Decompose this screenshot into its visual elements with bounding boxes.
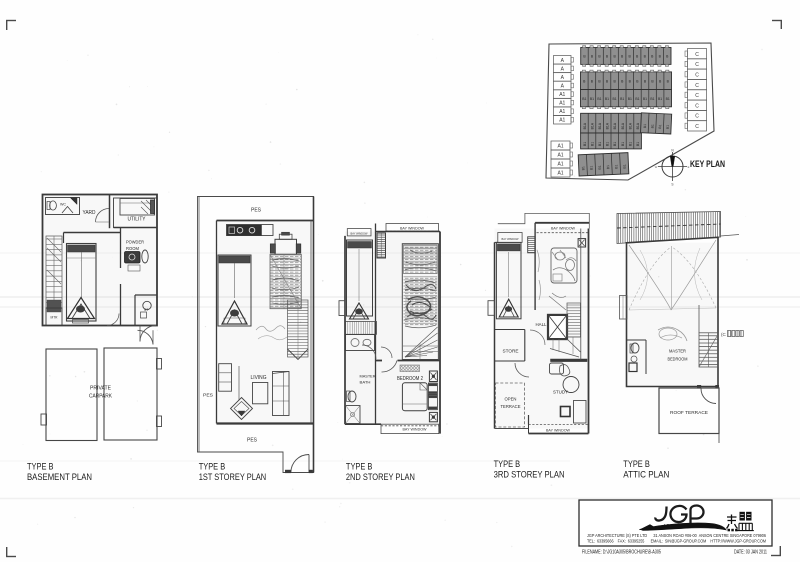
- svg-text:B1: B1: [643, 124, 647, 128]
- svg-text:TYPE B: TYPE B: [623, 459, 650, 469]
- svg-text:C: C: [695, 62, 699, 68]
- svg-text:B1: B1: [606, 165, 610, 169]
- svg-text:WC: WC: [60, 203, 66, 207]
- svg-text:ROOF TERRACE: ROOF TERRACE: [670, 410, 708, 415]
- svg-text:TYPE B: TYPE B: [346, 461, 373, 471]
- svg-text:CARPARK: CARPARK: [89, 394, 112, 400]
- svg-text:A1: A1: [557, 171, 563, 177]
- svg-text:B1: B1: [590, 142, 594, 146]
- svg-text:C: C: [695, 52, 699, 58]
- svg-text:ST: ST: [144, 308, 148, 312]
- svg-text:B1: B1: [666, 125, 670, 129]
- svg-text:A1: A1: [559, 109, 565, 115]
- svg-text:B1: B1: [589, 166, 593, 170]
- svg-text:DATE: 03 JAN 2011: DATE: 03 JAN 2011: [734, 549, 767, 555]
- svg-text:B1: B1: [658, 124, 662, 128]
- svg-text:KEY PLAN: KEY PLAN: [690, 159, 725, 170]
- svg-text:B1: B1: [614, 164, 618, 168]
- svg-text:PES: PES: [203, 393, 213, 398]
- svg-text:B1: B1: [613, 97, 617, 101]
- svg-text:B1: B1: [635, 97, 639, 101]
- svg-text:TYPE B: TYPE B: [199, 461, 226, 471]
- svg-text:PRIVATE: PRIVATE: [90, 386, 111, 392]
- svg-text:BAY WINDOW: BAY WINDOW: [351, 231, 369, 235]
- svg-text:LIVING: LIVING: [251, 375, 267, 381]
- svg-text:UTILITY: UTILITY: [128, 217, 147, 223]
- svg-text:POWDER: POWDER: [126, 240, 145, 245]
- svg-text:BEDROOM 2: BEDROOM 2: [397, 376, 423, 382]
- svg-text:FILENAME: D:\JG10A305\BROCHURE: FILENAME: D:\JG10A305\BROCHURE\B-A305: [582, 549, 661, 555]
- svg-text:B1: B1: [583, 142, 587, 146]
- svg-text:JGP ARCHITECTURE (S) PTE LTD: JGP ARCHITECTURE (S) PTE LTD 31 ANSON RO…: [587, 533, 767, 538]
- svg-text:TYPE B: TYPE B: [494, 459, 520, 469]
- svg-text:A1: A1: [559, 101, 565, 107]
- svg-text:ROOM: ROOM: [126, 246, 139, 251]
- svg-text:3RD STOREY PLAN: 3RD STOREY PLAN: [494, 470, 565, 480]
- svg-text:B1: B1: [651, 124, 655, 128]
- svg-text:TERRACE: TERRACE: [501, 404, 521, 409]
- svg-text:C: C: [695, 103, 699, 109]
- svg-text:TEL: 63395666 FAX: 633952: TEL: 63395666 FAX: 63395255 EMAIL: SIN@J…: [587, 538, 766, 543]
- svg-text:B1A: B1A: [621, 122, 625, 129]
- svg-text:B1: B1: [598, 142, 602, 146]
- svg-text:BATH: BATH: [360, 380, 371, 385]
- svg-text:B1A: B1A: [636, 122, 640, 129]
- svg-text:HALL: HALL: [536, 322, 548, 327]
- svg-text:A1: A1: [557, 153, 563, 159]
- svg-text:BAY WINDOW: BAY WINDOW: [502, 237, 520, 241]
- svg-text:B1A: B1A: [590, 122, 594, 129]
- svg-text:YARD: YARD: [83, 210, 96, 216]
- svg-text:OPEN: OPEN: [505, 397, 517, 402]
- svg-text:B1: B1: [666, 97, 670, 101]
- svg-text:PES: PES: [247, 438, 258, 444]
- svg-text:B1: B1: [605, 97, 609, 101]
- svg-text:BAY WINDOW: BAY WINDOW: [400, 226, 424, 230]
- svg-text:B1: B1: [606, 142, 610, 146]
- svg-text:B1: B1: [628, 97, 632, 101]
- svg-text:(C: (C: [721, 332, 726, 337]
- svg-text:C: C: [695, 124, 699, 130]
- svg-text:C: C: [695, 83, 699, 89]
- svg-text:B1: B1: [623, 164, 627, 168]
- svg-text:BASEMENT PLAN: BASEMENT PLAN: [27, 472, 92, 482]
- svg-text:B1: B1: [620, 97, 624, 101]
- svg-text:BEDROOM: BEDROOM: [668, 357, 688, 362]
- svg-text:B1A: B1A: [606, 122, 610, 129]
- svg-text:BAY WINDOW: BAY WINDOW: [403, 427, 427, 431]
- svg-text:STORE: STORE: [503, 349, 519, 354]
- svg-text:A1: A1: [557, 144, 563, 150]
- svg-text:A1: A1: [557, 162, 563, 168]
- svg-text:B1: B1: [581, 166, 585, 170]
- svg-text:C: C: [695, 114, 699, 120]
- svg-text:B1A: B1A: [613, 122, 617, 129]
- svg-text:A1: A1: [559, 118, 565, 124]
- svg-text:PES: PES: [251, 208, 262, 214]
- svg-text:W: W: [655, 165, 658, 169]
- svg-text:2ND STOREY PLAN: 2ND STOREY PLAN: [346, 472, 415, 482]
- svg-text:STUDY: STUDY: [553, 390, 568, 395]
- svg-text:C: C: [695, 93, 699, 99]
- svg-text:B1: B1: [650, 97, 654, 101]
- svg-text:B1: B1: [597, 97, 601, 101]
- svg-text:ATTIC PLAN: ATTIC PLAN: [623, 470, 669, 480]
- svg-text:B1: B1: [636, 142, 640, 146]
- svg-text:MASTER: MASTER: [669, 349, 686, 354]
- svg-text:B1: B1: [582, 97, 586, 101]
- svg-text:BAY WINDOW: BAY WINDOW: [546, 428, 570, 432]
- svg-text:TYPE B: TYPE B: [27, 461, 54, 471]
- svg-text:MASTER: MASTER: [360, 374, 376, 379]
- svg-text:A1: A1: [559, 92, 565, 98]
- svg-text:B1: B1: [658, 97, 662, 101]
- svg-text:BAY WINDOW: BAY WINDOW: [551, 226, 575, 230]
- svg-text:B1: B1: [643, 97, 647, 101]
- svg-text:MTR: MTR: [51, 316, 59, 320]
- svg-text:S: S: [671, 183, 673, 187]
- svg-text:B1: B1: [598, 165, 602, 169]
- svg-text:B1A: B1A: [598, 122, 602, 129]
- svg-text:B1: B1: [628, 142, 632, 146]
- svg-text:B1: B1: [590, 97, 594, 101]
- svg-text:1ST STOREY PLAN: 1ST STOREY PLAN: [199, 472, 267, 482]
- svg-text:B1A: B1A: [628, 122, 632, 129]
- svg-text:B1A: B1A: [583, 122, 587, 129]
- svg-text:C: C: [695, 72, 699, 78]
- svg-text:B1: B1: [613, 142, 617, 146]
- svg-text:B1: B1: [621, 142, 625, 146]
